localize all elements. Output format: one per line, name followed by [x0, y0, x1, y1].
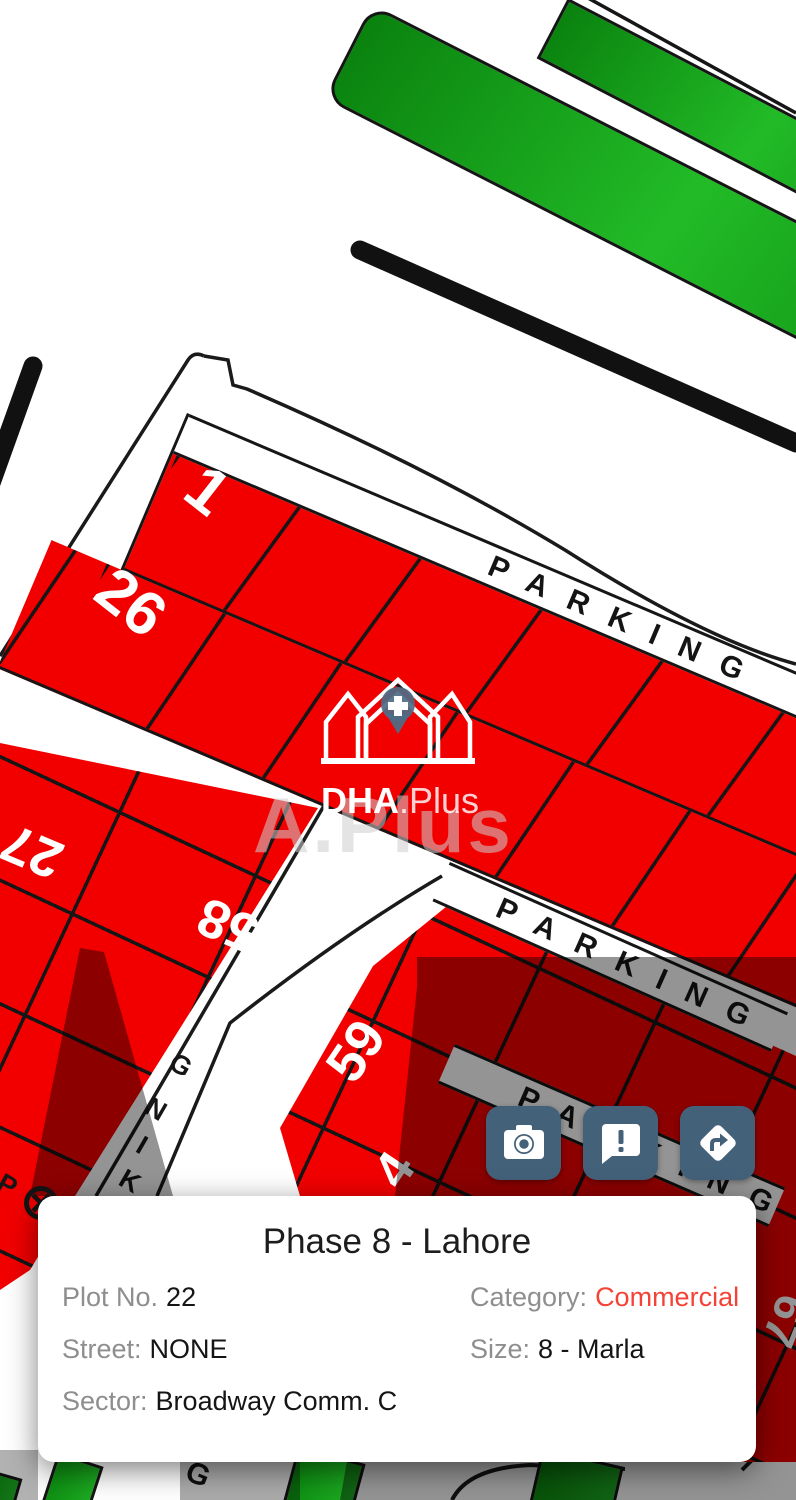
plot-label-58: 58 [190, 888, 266, 961]
road-letter-k: K [115, 1165, 145, 1198]
plot-label-67: 67 [755, 1289, 796, 1354]
plot-info-card: Phase 8 - Lahore Plot No.22 Category:Com… [38, 1196, 756, 1462]
plot-label-27: 27 [0, 814, 70, 887]
watermark-plus: .Plus [399, 780, 479, 821]
street-label: Street: [62, 1334, 142, 1364]
map-viewport[interactable]: PARKING PARKING PARKING 1 26 27 58 59 4 … [0, 0, 796, 1500]
sector-value: Broadway Comm. C [156, 1386, 398, 1416]
road-divider-line-left [0, 366, 33, 497]
report-button[interactable] [583, 1106, 658, 1180]
category-label: Category: [470, 1282, 587, 1312]
camera-button[interactable] [486, 1106, 561, 1180]
category-value: Commercial [595, 1282, 739, 1312]
directions-button[interactable] [680, 1106, 755, 1180]
road-letter-n: N [141, 1093, 171, 1126]
street-field: Street:NONE [62, 1334, 228, 1365]
plot-label-59: 59 [317, 1011, 395, 1091]
road-letter-p: P [0, 1169, 22, 1201]
category-field: Category:Commercial [470, 1282, 739, 1313]
dha-plus-logo [308, 662, 488, 772]
size-value: 8 - Marla [538, 1334, 645, 1364]
shadow-below-card-2 [0, 1450, 38, 1500]
directions-icon [695, 1120, 741, 1166]
watermark-brand-text: DHA.Plus [300, 780, 500, 822]
plot-no-value: 22 [166, 1282, 196, 1312]
shadow-below-card-1 [180, 1458, 300, 1500]
plot-label-4: 4 [365, 1143, 424, 1196]
watermark-dha: DHA [321, 780, 399, 821]
card-title: Phase 8 - Lahore [38, 1222, 756, 1262]
size-field: Size:8 - Marla [470, 1334, 645, 1365]
report-chat-icon [600, 1122, 642, 1164]
sector-label: Sector: [62, 1386, 148, 1416]
plot-no-field: Plot No.22 [62, 1282, 196, 1313]
road-letter-i: I [132, 1132, 152, 1159]
logo-pin-tip [386, 714, 410, 734]
size-label: Size: [470, 1334, 530, 1364]
sector-field: Sector:Broadway Comm. C [62, 1386, 397, 1417]
street-value: NONE [150, 1334, 228, 1364]
road-letter-g: G [165, 1049, 197, 1083]
plot-no-label: Plot No. [62, 1282, 158, 1312]
camera-icon [502, 1123, 546, 1163]
